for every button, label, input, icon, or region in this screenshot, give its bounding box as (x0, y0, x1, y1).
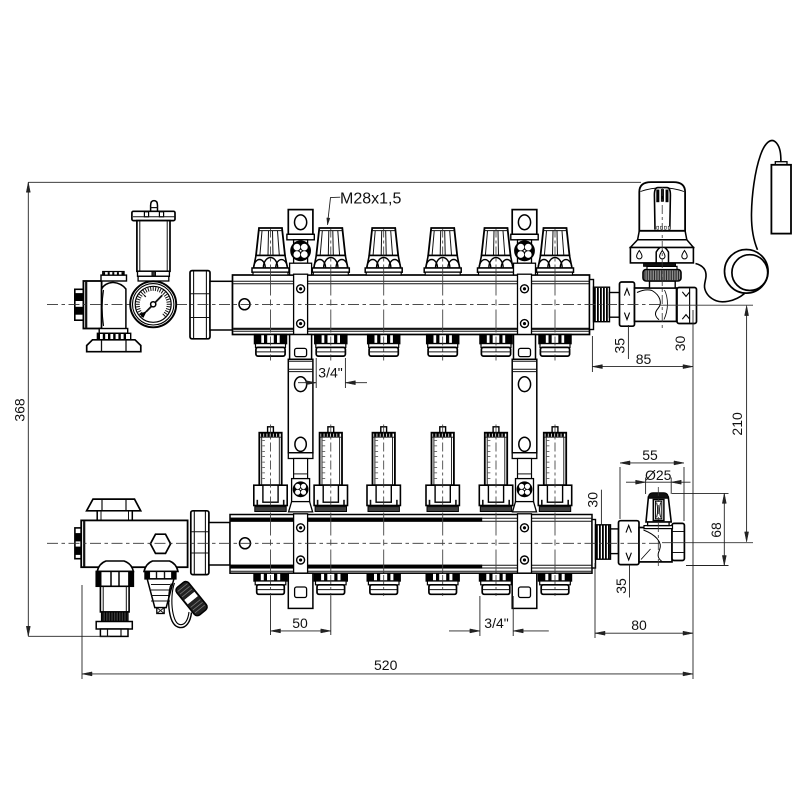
svg-text:55: 55 (642, 447, 658, 463)
svg-text:30: 30 (585, 492, 601, 508)
svg-text:368: 368 (12, 398, 28, 422)
svg-text:50: 50 (292, 615, 308, 631)
svg-text:M28x1,5: M28x1,5 (340, 191, 401, 208)
svg-text:35: 35 (613, 578, 629, 594)
svg-text:520: 520 (374, 657, 398, 673)
svg-text:80: 80 (631, 617, 647, 633)
svg-text:30: 30 (672, 336, 688, 352)
svg-text:3/4": 3/4" (318, 365, 342, 381)
svg-text:Ø25: Ø25 (645, 467, 672, 483)
svg-text:210: 210 (729, 412, 745, 436)
svg-text:68: 68 (708, 522, 724, 538)
svg-text:3/4": 3/4" (484, 615, 508, 631)
svg-text:35: 35 (612, 338, 628, 354)
svg-text:85: 85 (636, 351, 652, 367)
